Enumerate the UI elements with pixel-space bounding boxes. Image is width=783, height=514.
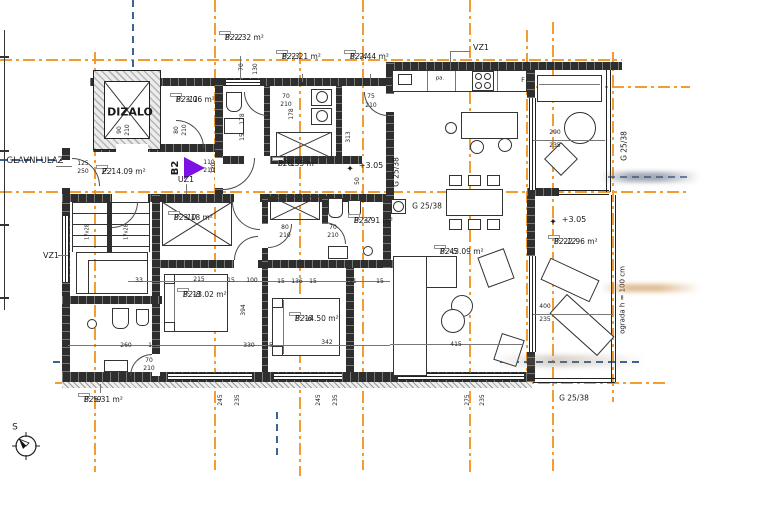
dimension-line: [533, 314, 613, 315]
leader-line: [370, 74, 371, 82]
dimension-label: 210: [143, 366, 154, 372]
nightstand: [164, 322, 175, 332]
dimension-label: 75: [367, 94, 375, 100]
dimension-label: 415: [450, 342, 461, 348]
dimension-label: 70: [329, 225, 337, 231]
dimension-label: 337: [347, 314, 353, 325]
burner: [475, 82, 482, 89]
room-area: P: 43.09 m²: [440, 247, 484, 256]
room-label-b2-3: B2-3P: 2.21 m²: [276, 50, 288, 54]
leader-line: [302, 74, 303, 82]
shower-drain: [87, 319, 97, 329]
glass-door: [529, 98, 536, 190]
dimension-label: 50: [355, 177, 361, 185]
room-area: P: 6.55 m²: [278, 159, 317, 168]
dimension-label: 15: [265, 343, 273, 349]
glass-door: [529, 256, 536, 352]
dimension-label: 210: [365, 103, 376, 109]
dimension-label: 15: [227, 278, 235, 284]
room-area: P: 2.44 m²: [350, 52, 389, 61]
annotation-label: G 25/38: [392, 157, 400, 187]
dimension-label: 90: [117, 126, 123, 134]
sofa-section: [393, 256, 427, 376]
dimension-label: 80: [174, 126, 180, 134]
kitchen-counter: [392, 70, 527, 92]
dimension-label: 394: [241, 304, 247, 315]
chair: [449, 175, 462, 186]
dimension-label: 15: [309, 279, 317, 285]
toilet: [112, 308, 129, 329]
annotation-label: ograda h = 100 cm: [620, 266, 627, 334]
dimension-label: 245: [218, 394, 224, 405]
annotation-label: B2: [171, 161, 181, 176]
window: [274, 373, 342, 380]
room-area: P: 2.32 m²: [225, 33, 264, 42]
toilet: [328, 198, 343, 218]
dimension-label: 260: [120, 343, 131, 349]
wall: [160, 260, 394, 268]
dimension-label: 100: [246, 278, 257, 284]
dimension-label: 136: [291, 279, 302, 285]
sink: [104, 360, 128, 372]
dimension-label: 70: [145, 358, 153, 364]
closet-cross: [276, 132, 332, 158]
room-label-b2-12: B2-12P: 22.96 m²: [548, 235, 560, 239]
dimension-line: [533, 140, 605, 141]
closet-cross: [162, 202, 232, 246]
dimension-label: 210: [327, 233, 338, 239]
dimension-label: 210: [279, 233, 290, 239]
dimension-line: [68, 345, 390, 346]
dimension-label: 313: [346, 131, 352, 142]
leader-line: [450, 51, 451, 65]
toilet: [226, 92, 242, 112]
window: [226, 79, 260, 86]
door-opening: [234, 260, 258, 268]
window: [62, 216, 69, 282]
wall: [262, 194, 268, 224]
closet-cross: [270, 196, 320, 220]
room-area: P: 3.91 m²: [354, 216, 393, 225]
annotation-label: S: [12, 424, 18, 433]
annotation-label: UZ1: [178, 176, 194, 184]
annotation-label: F: [521, 77, 525, 84]
dimension-label: 235: [235, 394, 241, 405]
window: [168, 373, 252, 380]
dimension-label: 178: [240, 113, 246, 124]
dimension-label: 125: [77, 161, 88, 167]
leader-line: [58, 255, 68, 256]
washing-machine-drum: [316, 91, 328, 103]
counter-divider: [427, 71, 428, 91]
leader-line: [450, 51, 470, 52]
railing: [557, 190, 609, 195]
room-area: P: 3.18 m²: [174, 213, 213, 222]
room-label-b2-8: B2-8P: 13.02 m²: [177, 288, 189, 292]
floor-plan: B2-2P: 2.32 m²B2-3P: 2.21 m²B2-4P: 2.44 …: [0, 0, 783, 514]
railing: [533, 378, 615, 383]
dimension-label: 330: [243, 343, 254, 349]
wall: [527, 190, 535, 256]
annotation-label: pa.: [436, 76, 445, 82]
chair: [487, 175, 500, 186]
dimension-label: 80: [281, 225, 289, 231]
dimension-label: 245: [316, 394, 322, 405]
wall: [152, 194, 160, 356]
kitchen-sink: [398, 74, 412, 85]
dimension-label: 15: [240, 133, 246, 141]
dimension-label: 130: [253, 63, 259, 74]
dimension-label: 400: [539, 304, 550, 310]
facade-hatch-strip: [62, 382, 532, 388]
dimension-label: 15: [277, 279, 285, 285]
room-label-b2-7: B2-7P: 3.91 m²: [348, 214, 360, 218]
annotation-label: G 25/38: [412, 202, 442, 210]
dimension-label: 191: [345, 279, 356, 285]
dining-table: [446, 189, 503, 216]
burner: [475, 73, 482, 80]
room-label-b2-4: B2-4P: 2.44 m²: [344, 50, 356, 54]
room-area: P: 13.02 m²: [183, 290, 227, 299]
annotation-label: DIZALO: [107, 107, 153, 118]
annotation-label: GLAVNI ULAZ: [7, 157, 64, 166]
chair: [449, 219, 462, 230]
counter-divider: [497, 71, 498, 91]
annotation-label: +3.05: [562, 216, 587, 224]
room-label-b2-5: B2-5P: 43.09 m²: [434, 245, 446, 249]
outdoor-bench: [537, 75, 602, 102]
room-area: P: 2.21 m²: [282, 52, 321, 61]
dimension-label: 235: [480, 394, 486, 405]
room-area: P: 14.09 m²: [102, 167, 146, 176]
room-area: P: 22.96 m²: [554, 237, 598, 246]
burner: [484, 82, 491, 89]
door-opening: [234, 194, 260, 202]
annotation-label: VZ1: [473, 44, 489, 52]
door-opening: [112, 194, 148, 202]
room-label-b2-9: B2-9P: 5.31 m²: [78, 393, 90, 397]
dimension-label: 250: [77, 169, 88, 175]
sink: [328, 246, 348, 259]
nightstand: [164, 274, 175, 284]
dimension-label: 33: [135, 278, 143, 284]
dimension-label: 215: [193, 277, 204, 283]
dimension-label: 290: [549, 130, 560, 136]
dimension-label: 15: [376, 279, 384, 285]
chair: [468, 219, 481, 230]
annotation-label: 17x28: [125, 224, 130, 240]
annotation-label: 17x28: [86, 224, 91, 240]
annotation-label: +3.05: [359, 162, 384, 170]
dimension-label: 70: [282, 94, 290, 100]
nightstand: [272, 346, 283, 356]
wall: [383, 196, 391, 268]
wall: [386, 62, 622, 70]
leader-line: [100, 384, 101, 393]
north-compass-icon: [10, 430, 42, 462]
railing: [606, 70, 611, 192]
bar-stool: [445, 122, 457, 134]
annotation-label: ✦: [346, 166, 354, 175]
wall: [262, 248, 268, 382]
room-label-b2-2: B2-2P: 2.32 m²: [219, 31, 231, 35]
dimension-label: 342: [321, 340, 332, 346]
dimension-label: 210: [280, 102, 291, 108]
annotation-label: VZ1: [43, 252, 59, 260]
dimension-label: 15: [148, 343, 156, 349]
wall: [527, 70, 535, 98]
dimension-label: 235: [539, 317, 550, 323]
dimension-label: 178: [289, 108, 295, 119]
dimension-label: 70: [239, 63, 245, 71]
dimension-label: 275: [465, 394, 471, 405]
bench-line: [539, 84, 600, 85]
leader-line: [56, 166, 72, 167]
leader-line: [186, 184, 187, 194]
washing-machine-drum: [316, 110, 328, 122]
room-label-b2-1: B2-1P: 6.55 m²: [272, 157, 284, 161]
wall: [62, 296, 162, 304]
room-area: P: 3.06 m²: [176, 95, 215, 104]
room-label-b2-6: B2-6P: 14.50 m²: [289, 312, 301, 316]
bidet: [136, 309, 149, 326]
kitchen-island: [461, 112, 518, 139]
nightstand: [272, 298, 283, 308]
room-label-z2: Z2P: 14.09 m²: [96, 165, 108, 169]
dimension-label: 235: [333, 394, 339, 405]
bar-stool: [498, 138, 512, 152]
boiler-circle: [393, 201, 404, 212]
dimension-label: 210: [125, 124, 131, 135]
coffee-table: [441, 309, 465, 333]
annotation-label: G 25/38: [620, 131, 628, 161]
chair: [487, 219, 500, 230]
room-area: P: 5.31 m²: [84, 395, 123, 404]
wall: [336, 86, 342, 160]
elevator-door: [116, 144, 148, 152]
bar-stool: [470, 140, 484, 154]
annotation-label: ✦: [549, 219, 557, 228]
shower-drain: [363, 246, 373, 256]
counter-divider: [455, 71, 456, 91]
room-label-b2-10: B2-10P: 3.18 m²: [168, 211, 180, 215]
burner: [484, 73, 491, 80]
dimension-label: 235: [549, 143, 560, 149]
room-label-b2-11: B2-11P: 3.06 m²: [170, 93, 182, 97]
dimension-label: 120: [211, 162, 217, 173]
railing: [611, 195, 616, 382]
dimension-label: 210: [182, 124, 188, 135]
chair: [468, 175, 481, 186]
room-area: P: 14.50 m²: [295, 314, 339, 323]
annotation-label: G 25/38: [559, 394, 589, 402]
